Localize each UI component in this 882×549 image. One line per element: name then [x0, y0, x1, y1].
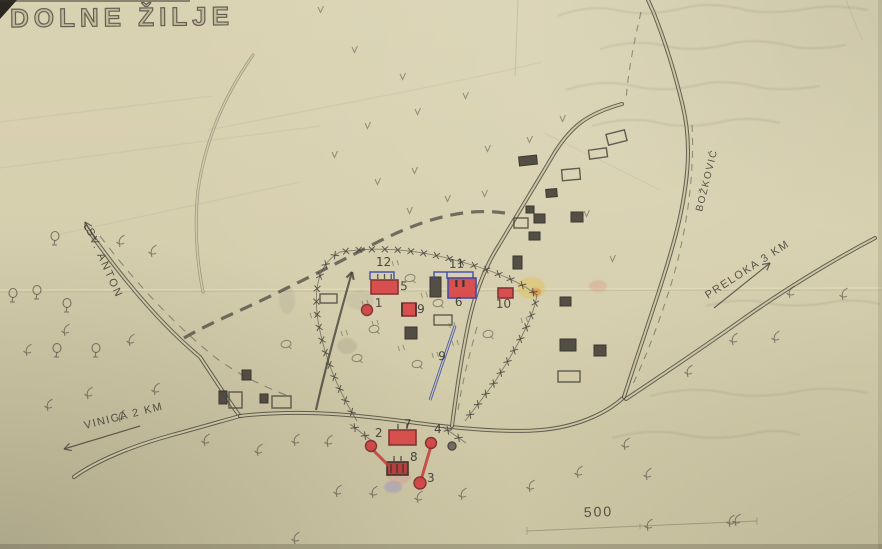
fence-x-mark [454, 434, 462, 442]
place-label: 500 [584, 503, 614, 520]
site-number: 1 [375, 296, 383, 310]
grass-v-mark [527, 136, 533, 143]
photo-edge-shadow [0, 544, 882, 549]
fence-x-mark [510, 346, 518, 354]
place-label: VINICA 2 KM [83, 401, 165, 432]
place-label: PRELOKA 3 KM [703, 238, 792, 301]
site-number: 3 [427, 471, 435, 485]
arrow-head [64, 449, 72, 451]
road-centre-fill [196, 55, 253, 292]
grass-v-mark [485, 145, 491, 152]
building-dark [430, 277, 441, 297]
fence-x-mark [516, 335, 524, 343]
building-dark [260, 394, 268, 403]
road-outline [624, 0, 688, 397]
red-dot-marker [414, 477, 426, 489]
building-outline [588, 148, 607, 159]
building-dark [526, 206, 534, 213]
place-label: SV. ANTON [83, 226, 125, 300]
shrub-symbol [334, 485, 342, 497]
site-number: 10 [496, 296, 512, 311]
building-dark [560, 339, 576, 351]
paper-stain [517, 277, 545, 299]
site-number: 11 [449, 257, 465, 271]
red-dot-marker [426, 438, 437, 449]
grass-v-mark [560, 115, 566, 122]
grass-v-mark [332, 151, 338, 158]
shrub-symbol [292, 434, 300, 446]
bleedthrough-handwriting [706, 301, 880, 306]
grass-tick-mark [398, 345, 405, 351]
red-dot-marker [366, 441, 377, 452]
shrub-symbol [127, 334, 135, 346]
fence-x-mark [489, 379, 497, 387]
grass-v-mark [318, 6, 324, 13]
shrub-symbol [575, 466, 583, 478]
building-red [389, 430, 416, 445]
grass-v-mark [445, 195, 451, 202]
red-dot-marker [362, 305, 373, 316]
road-centre-fill [624, 0, 688, 397]
shrub-symbol [685, 365, 693, 377]
fence-x-mark [522, 323, 530, 331]
shrub-symbol [202, 434, 210, 446]
building-dark [560, 297, 571, 306]
fence-x-mark [466, 410, 474, 418]
gray-dot-marker [448, 442, 456, 450]
grass-tick-mark [521, 317, 528, 323]
tree-oval-tail [420, 367, 423, 370]
bleedthrough-handwriting [558, 5, 868, 16]
tree-symbol [92, 344, 100, 353]
site-number: 12 [376, 255, 391, 269]
shrub-symbol [24, 344, 32, 356]
scale-bar-line [527, 521, 757, 531]
tree-oval-tail [413, 281, 416, 284]
arrow-line [64, 426, 140, 449]
road-outline [452, 104, 622, 426]
paper-scratch [0, 96, 212, 122]
fence-x-mark [474, 400, 482, 408]
fence-x-mark [497, 368, 505, 376]
building-dark [594, 345, 606, 356]
fence-x-mark [433, 252, 440, 259]
building-outline [320, 294, 337, 303]
grass-v-mark [610, 255, 616, 262]
site-number: 2 [375, 426, 383, 440]
paper-scratch [208, 62, 542, 130]
grass-v-mark [482, 190, 488, 197]
shrub-symbol [149, 245, 157, 257]
grass-v-mark [352, 46, 358, 53]
fence-x-mark [507, 275, 515, 283]
shrub-symbol [325, 435, 333, 447]
grass-v-mark [400, 73, 406, 80]
shrub-symbol [727, 515, 735, 527]
grass-tick-mark [452, 340, 459, 346]
bleedthrough-handwriting [566, 82, 820, 90]
building-dark [546, 189, 558, 198]
site-number: 6 [455, 295, 463, 309]
fence-x-mark [470, 262, 477, 269]
building-dark [513, 256, 522, 269]
building-dark [405, 327, 417, 339]
building-outline [606, 130, 627, 145]
paper-crease [846, 0, 862, 40]
building-outline [558, 371, 580, 382]
shrub-symbol [730, 333, 738, 345]
fence-x-mark [330, 373, 338, 381]
shrub-symbol [772, 331, 780, 343]
shrub-symbol [370, 486, 378, 498]
building-dark [519, 155, 538, 166]
building-dark [571, 212, 583, 222]
fence-x-mark [336, 385, 344, 393]
grass-tick-mark [392, 260, 399, 266]
grass-v-mark [415, 108, 421, 115]
bleedthrough-handwriting [650, 389, 868, 396]
tree-oval-tail [441, 306, 444, 309]
bleedthrough-handwriting [600, 41, 846, 49]
building-dark [529, 232, 540, 240]
site-number: 4 [434, 422, 442, 436]
photo-edge-shadow [878, 0, 882, 549]
building-red [402, 303, 416, 316]
shrub-symbol [292, 532, 300, 544]
building-dark [219, 391, 227, 404]
shrub-symbol [85, 387, 93, 399]
fence-x-mark [322, 349, 329, 356]
grass-v-mark [584, 210, 590, 217]
building-outline [272, 396, 291, 408]
map-title: DOLNE ŽILJE [10, 1, 234, 34]
paper-crease [760, 476, 882, 549]
grass-v-mark [375, 178, 381, 185]
fence-x-mark [350, 423, 358, 431]
dashed-track [184, 212, 505, 338]
site-number: 7 [404, 417, 412, 431]
shrub-symbol [459, 488, 467, 500]
fence-x-mark [532, 299, 539, 306]
paper-stain [589, 280, 607, 292]
tree-oval-tail [377, 332, 380, 335]
fence-x-mark [318, 336, 325, 343]
shrub-symbol [644, 468, 652, 480]
fence-x-mark [527, 311, 535, 319]
shrub-symbol [255, 444, 263, 456]
wire-fence-line [350, 424, 372, 441]
road-outline [196, 55, 253, 292]
site-number: 9 [438, 349, 446, 363]
fence-x-mark [495, 270, 503, 278]
village-map-drawing: 1234567899101112SV. ANTONVINICA 2 KMPREL… [0, 0, 882, 549]
shrub-symbol [117, 235, 125, 247]
scanned-village-map-photo: 1234567899101112SV. ANTONVINICA 2 KMPREL… [0, 0, 882, 549]
fence-x-mark [341, 397, 349, 405]
tree-oval-tail [360, 361, 363, 364]
building-dark [534, 214, 545, 223]
shrub-symbol [415, 491, 423, 503]
grass-v-mark [412, 167, 418, 174]
fence-x-mark [503, 357, 511, 365]
grass-v-mark [407, 207, 413, 214]
shrub-symbol [45, 399, 53, 411]
building-outline [562, 168, 581, 181]
shrub-symbol [622, 438, 630, 450]
road-centre-fill [452, 104, 622, 426]
tree-oval-tail [491, 337, 494, 340]
place-label: BOŽKOVIĆ [692, 148, 720, 213]
fence-x-mark [482, 390, 490, 398]
shrub-symbol [527, 480, 535, 492]
shrub-symbol [152, 383, 160, 395]
grass-v-mark [463, 92, 469, 99]
tree-oval-tail [289, 347, 292, 350]
paper-crease [515, 0, 518, 76]
paper-stain [337, 338, 357, 354]
tree-symbol [63, 299, 71, 308]
building-red [371, 280, 398, 294]
grass-tick-mark [341, 330, 348, 336]
site-number: 5 [400, 279, 408, 293]
site-number: 9 [417, 302, 425, 316]
fence-x-mark [361, 431, 369, 439]
building-dark [242, 370, 251, 380]
bleedthrough-handwriting [612, 431, 800, 438]
dashed-track [100, 236, 286, 395]
shrub-symbol [62, 324, 70, 336]
grass-tick-mark [421, 292, 428, 298]
site-number: 8 [410, 450, 418, 464]
paper-scratch [0, 126, 320, 168]
grass-v-mark [365, 122, 371, 129]
tree-symbol [53, 344, 61, 353]
shrub-symbol [645, 519, 653, 531]
blue-bracket [370, 272, 394, 280]
